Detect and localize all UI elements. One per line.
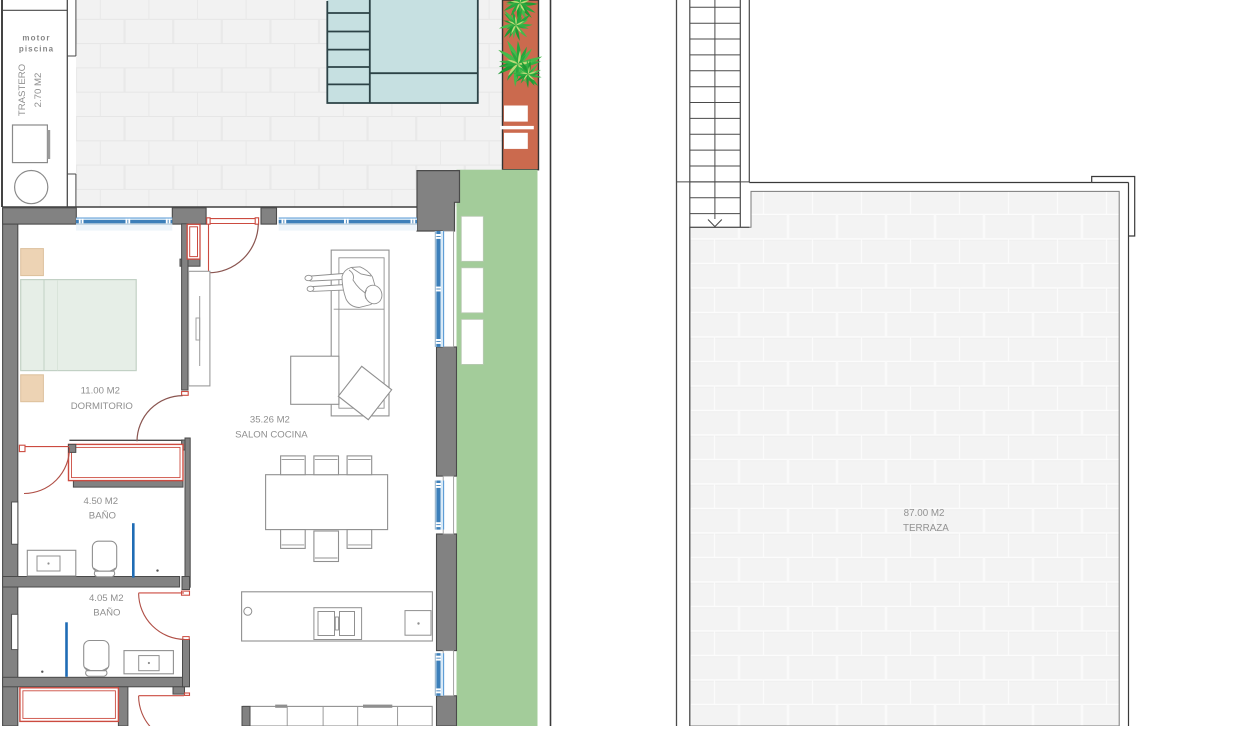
svg-text:TRASTERO: TRASTERO	[17, 64, 28, 116]
svg-text:4.05 M2: 4.05 M2	[89, 593, 124, 604]
svg-text:motor: motor	[22, 34, 50, 43]
svg-text:4.50 M2: 4.50 M2	[83, 496, 118, 507]
svg-text:11.00 M2: 11.00 M2	[81, 385, 120, 396]
svg-text:SALON COCINA: SALON COCINA	[235, 429, 308, 440]
svg-text:2.70 M2: 2.70 M2	[33, 73, 44, 108]
svg-text:87.00 M2: 87.00 M2	[904, 508, 945, 519]
svg-text:TERRAZA: TERRAZA	[903, 523, 949, 534]
svg-text:BAÑO: BAÑO	[89, 511, 116, 522]
svg-text:BAÑO: BAÑO	[93, 608, 120, 619]
svg-text:DORMITORIO: DORMITORIO	[71, 401, 133, 412]
svg-text:piscina: piscina	[19, 45, 54, 54]
svg-text:35.26 M2: 35.26 M2	[250, 414, 290, 425]
